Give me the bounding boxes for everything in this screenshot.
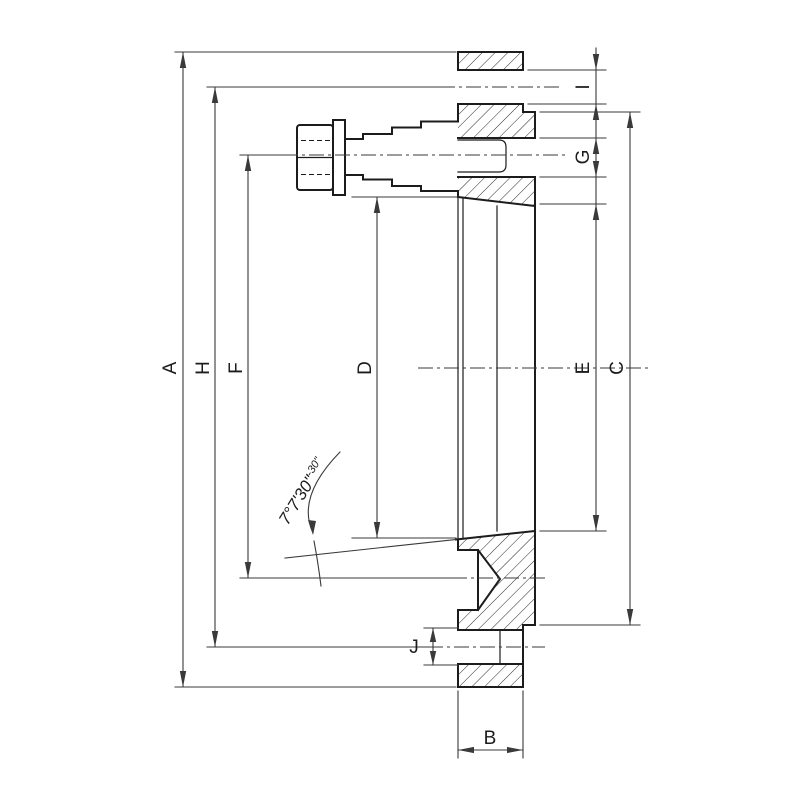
dimension-f-label: F [226, 362, 247, 374]
dimension-b-label: B [484, 728, 497, 749]
flange-section-drawing: A H F D I G E [0, 0, 800, 800]
dimension-j-label: J [409, 637, 419, 658]
dimension-c-label: C [607, 361, 628, 375]
dimension-d-label: D [355, 361, 376, 375]
dimension-i-label: I [573, 84, 594, 89]
dimension-h-label: H [193, 361, 214, 375]
dimension-a-label: A [160, 361, 181, 374]
dimension-g-label: G [573, 150, 594, 165]
technical-drawing-page: A H F D I G E [0, 0, 800, 800]
dimension-e-label: E [573, 362, 594, 375]
drawing-background [0, 0, 800, 800]
